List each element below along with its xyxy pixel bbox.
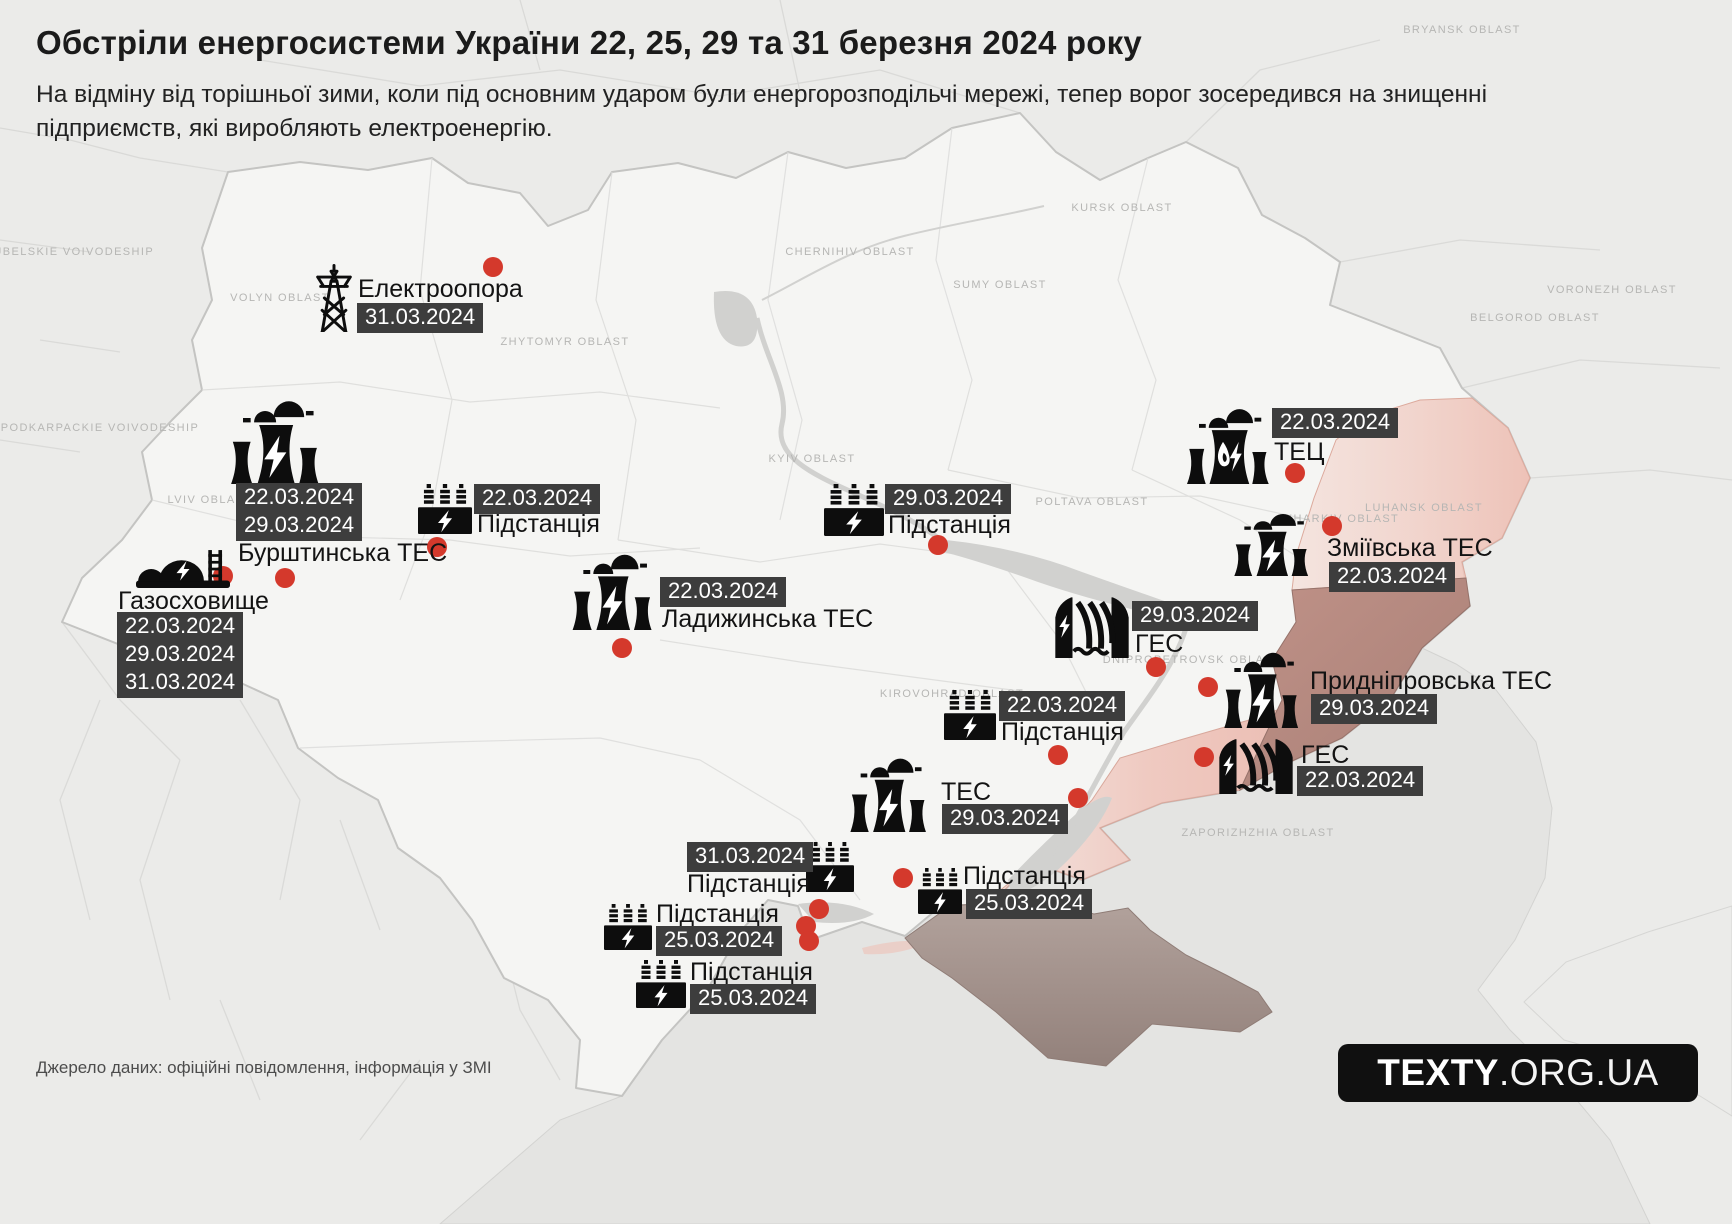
page-title: Обстріли енергосистеми України 22, 25, 2… bbox=[36, 24, 1142, 62]
date-badge: 29.03.2024 bbox=[942, 804, 1068, 834]
date-badge: 31.03.2024 bbox=[357, 303, 483, 333]
region-label: SUMY OBLAST bbox=[953, 279, 1046, 291]
facility-label: Газосховище bbox=[118, 588, 269, 614]
region-label: ZHYTOMYR OBLAST bbox=[501, 336, 630, 348]
substation-icon bbox=[418, 484, 472, 534]
date-badge: 22.03.2024 bbox=[1272, 408, 1398, 438]
facility-label: ТЕЦ bbox=[1274, 439, 1324, 465]
facility-label: Підстанція bbox=[963, 863, 1086, 889]
date-badge: 25.03.2024 bbox=[966, 889, 1092, 919]
date-badge: 29.03.2024 bbox=[1311, 694, 1437, 724]
date-badge: 22.03.2024 bbox=[999, 691, 1125, 721]
hydro-plant-icon bbox=[1218, 738, 1294, 794]
facility-label: Підстанція bbox=[656, 901, 779, 927]
date-badge: 31.03.2024 bbox=[117, 668, 243, 698]
facility-label: Підстанція bbox=[687, 871, 810, 897]
strike-dot bbox=[799, 931, 819, 951]
date-badge: 22.03.2024 bbox=[474, 484, 600, 514]
date-badge: 22.03.2024 bbox=[236, 483, 362, 513]
facility-label: Підстанція bbox=[690, 959, 813, 985]
facility-label: Електроопора bbox=[358, 276, 523, 302]
power-plant-icon bbox=[1230, 510, 1316, 576]
region-label: LUHANSK OBLAST bbox=[1365, 502, 1483, 514]
region-label: CHERNIHIV OBLAST bbox=[785, 246, 914, 258]
power-plant-icon bbox=[568, 550, 660, 630]
facility-label: Підстанція bbox=[1001, 719, 1124, 745]
region-label: PODKARPACKIE VOIVODESHIP bbox=[1, 422, 199, 434]
chp-plant-icon bbox=[1184, 406, 1274, 484]
substation-icon bbox=[806, 842, 854, 892]
power-plant-icon bbox=[846, 754, 934, 832]
region-label: LUBELSKIE VOIVODESHIP bbox=[0, 246, 154, 258]
date-badge: 29.03.2024 bbox=[885, 484, 1011, 514]
strike-dot bbox=[1322, 516, 1342, 536]
infographic-canvas: LUBELSKIE VOIVODESHIPPODKARPACKIE VOIVOD… bbox=[0, 0, 1732, 1224]
texty-logo: TEXTY .ORG.UA bbox=[1338, 1044, 1698, 1102]
facility-label: Підстанція bbox=[477, 511, 600, 537]
facility-label: Зміївська ТЕС bbox=[1327, 535, 1493, 561]
date-badge: 22.03.2024 bbox=[1297, 766, 1423, 796]
substation-icon bbox=[824, 484, 884, 536]
strike-dot bbox=[893, 868, 913, 888]
power-plant-icon bbox=[226, 396, 328, 484]
strike-dot bbox=[483, 257, 503, 277]
region-label: BRYANSK OBLAST bbox=[1403, 24, 1521, 36]
strike-dot bbox=[612, 638, 632, 658]
date-badge: 22.03.2024 bbox=[117, 612, 243, 642]
strike-dot bbox=[1198, 677, 1218, 697]
strike-dot bbox=[1146, 657, 1166, 677]
strike-dot bbox=[1285, 463, 1305, 483]
substation-icon bbox=[604, 904, 652, 950]
transmission-tower-icon bbox=[314, 264, 354, 332]
region-label: KURSK OBLAST bbox=[1071, 202, 1172, 214]
facility-label: ГЕС bbox=[1301, 742, 1349, 768]
facility-label: Бурштинська ТЕС bbox=[238, 540, 447, 566]
region-label: POLTAVA OBLAST bbox=[1036, 496, 1149, 508]
strike-dot bbox=[275, 568, 295, 588]
region-label: VORONEZH OBLAST bbox=[1547, 284, 1677, 296]
data-source-note: Джерело даних: офіційні повідомлення, ін… bbox=[36, 1058, 492, 1078]
hydro-plant-icon bbox=[1054, 596, 1130, 658]
strike-dot bbox=[809, 899, 829, 919]
date-badge: 22.03.2024 bbox=[660, 577, 786, 607]
region-label: KYIV OBLAST bbox=[769, 453, 856, 465]
strike-dot bbox=[1068, 788, 1088, 808]
substation-icon bbox=[636, 960, 686, 1008]
date-badge: 22.03.2024 bbox=[1329, 562, 1455, 592]
texty-logo-bold: TEXTY bbox=[1377, 1052, 1499, 1094]
strike-dot bbox=[1194, 747, 1214, 767]
date-badge: 29.03.2024 bbox=[236, 511, 362, 541]
date-badge: 29.03.2024 bbox=[117, 640, 243, 670]
facility-label: Підстанція bbox=[888, 512, 1011, 538]
region-label: ZAPORIZHZHIA OBLAST bbox=[1181, 827, 1334, 839]
page-subtitle: На відміну від торішньої зими, коли під … bbox=[36, 78, 1576, 147]
date-badge: 31.03.2024 bbox=[687, 842, 813, 872]
date-badge: 25.03.2024 bbox=[656, 926, 782, 956]
facility-label: ТЕС bbox=[941, 779, 991, 805]
substation-icon bbox=[944, 690, 996, 740]
gas-storage-icon bbox=[136, 546, 230, 588]
date-badge: 29.03.2024 bbox=[1132, 601, 1258, 631]
facility-label: Ладижинська ТЕС bbox=[662, 606, 873, 632]
date-badge: 25.03.2024 bbox=[690, 984, 816, 1014]
substation-icon bbox=[918, 868, 962, 914]
facility-label: Придніпровська ТЕС bbox=[1310, 668, 1552, 694]
region-label: BELGOROD OBLAST bbox=[1470, 312, 1600, 324]
texty-logo-rest: .ORG.UA bbox=[1499, 1052, 1659, 1094]
strike-dot bbox=[1048, 745, 1068, 765]
facility-label: ГЕС bbox=[1135, 631, 1183, 657]
power-plant-icon bbox=[1220, 648, 1306, 728]
